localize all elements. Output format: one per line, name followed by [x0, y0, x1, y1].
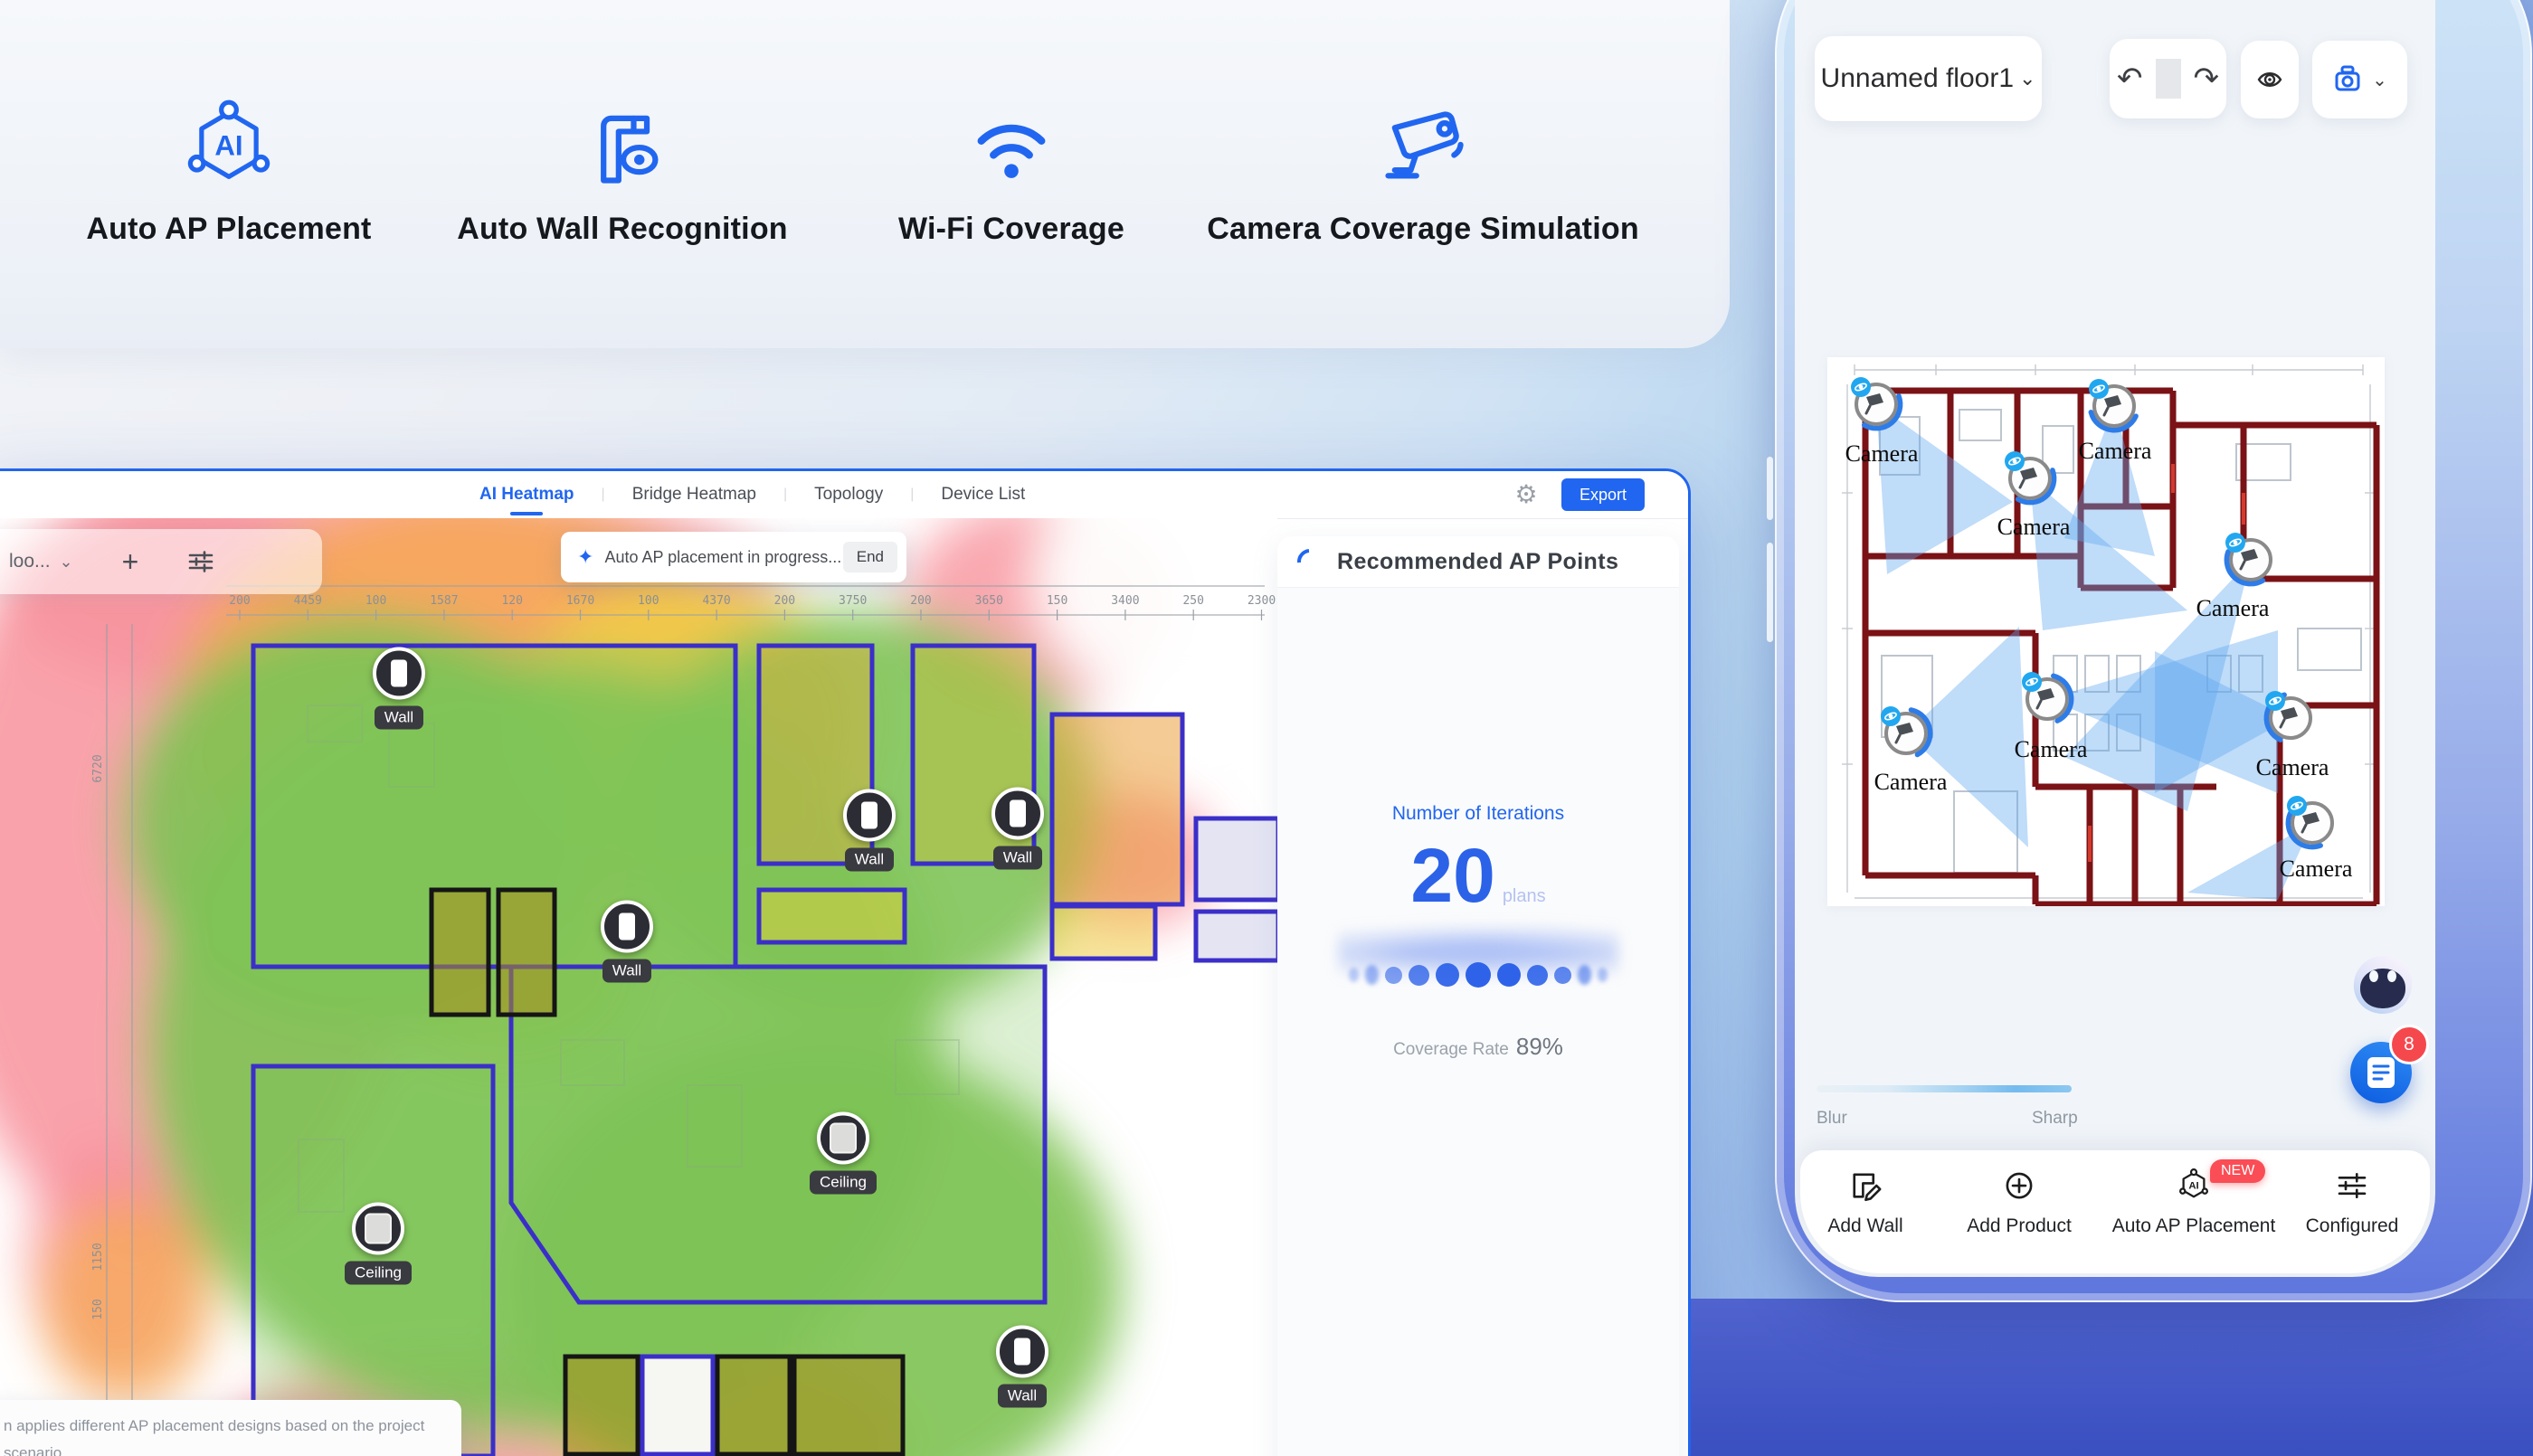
wall-tag: Wall	[375, 706, 423, 730]
svg-text:250: 250	[1182, 594, 1203, 608]
panel-title: Recommended AP Points	[1337, 549, 1618, 575]
wall-icon	[991, 788, 1044, 840]
slider-right-label: Sharp	[2032, 1109, 2078, 1129]
document-icon	[2366, 1055, 2396, 1090]
ceiling-tag: Ceiling	[810, 1171, 877, 1195]
coverage-value: 89%	[1516, 1033, 1563, 1060]
wall-marker[interactable]: Wall	[991, 788, 1044, 870]
ceiling-icon	[352, 1203, 404, 1255]
iteration-dot	[1365, 965, 1379, 986]
wall-marker[interactable]: Wall	[373, 648, 425, 730]
wall-icon	[373, 648, 425, 700]
svg-text:Camera: Camera	[1997, 514, 2071, 540]
iteration-dot	[1598, 968, 1608, 983]
wall-marker[interactable]: Wall	[843, 789, 896, 872]
panel-body: Number of Iterations 20plans Coverage Ra…	[1277, 588, 1679, 1456]
coverage-label: Coverage Rate	[1393, 1040, 1509, 1059]
sparkle-icon: ✦	[577, 545, 593, 569]
recommended-ap-panel: Recommended AP Points Number of Iteratio…	[1277, 536, 1679, 1456]
camera-floorplan[interactable]: CameraCameraCameraCameraCameraCameraCame…	[1827, 357, 2385, 906]
iteration-dot	[1436, 963, 1459, 987]
svg-text:150: 150	[1047, 594, 1067, 608]
svg-text:AI: AI	[214, 129, 242, 161]
wall-icon	[601, 901, 653, 953]
undo-redo-group: ↶ ↷	[2110, 39, 2226, 118]
iteration-dot	[1554, 967, 1571, 984]
chevron-down-icon: ⌄	[2019, 67, 2035, 90]
svg-text:Camera: Camera	[2280, 856, 2353, 882]
tab-device-list[interactable]: Device List	[941, 485, 1025, 505]
chevron-down-icon: ⌄	[2372, 69, 2387, 91]
floor-selector-cluster: loo... ⌄ +	[0, 529, 322, 594]
toast-text: Auto AP placement in progress...	[604, 548, 842, 567]
rotate-3d-badge	[2287, 796, 2307, 816]
loading-spinner-icon	[1292, 544, 1327, 579]
tab-bridge-heatmap[interactable]: Bridge Heatmap	[632, 485, 756, 505]
tab-separator: |	[910, 487, 914, 503]
toolbar-item-label: Auto AP Placement	[2112, 1215, 2276, 1237]
wall-marker[interactable]: Wall	[996, 1326, 1048, 1408]
phone-side-button	[1767, 457, 1773, 520]
tooltip-line1: n applies different AP placement designs…	[4, 1413, 443, 1456]
camera-icon	[2332, 65, 2365, 94]
feature-label: Auto Wall Recognition	[457, 212, 788, 247]
feature-label: Camera Coverage Simulation	[1207, 212, 1639, 247]
iteration-dot	[1349, 968, 1359, 983]
feature-strip: AIAuto AP Placement Auto Wall Recognitio…	[0, 0, 1730, 348]
window-toolbar: AI Heatmap|Bridge Heatmap|Topology|Devic…	[0, 471, 1688, 519]
redo-button[interactable]: ↷	[2181, 61, 2233, 97]
svg-text:4370: 4370	[702, 594, 730, 608]
iteration-dot	[1578, 965, 1591, 986]
divider	[2156, 59, 2181, 99]
ceiling-marker[interactable]: Ceiling	[345, 1203, 412, 1285]
iteration-dot	[1497, 963, 1521, 987]
rotate-3d-badge	[2265, 691, 2285, 711]
heatmap-svg: 2004459100158712016701004370200375020036…	[0, 518, 1277, 1456]
floorplan-svg: CameraCameraCameraCameraCameraCameraCame…	[1827, 357, 2385, 906]
svg-text:Camera: Camera	[2196, 595, 2270, 621]
wall-icon	[996, 1326, 1048, 1378]
rotate-3d-badge	[2005, 451, 2025, 471]
toolbar-item-label: Add Wall	[1827, 1215, 1902, 1237]
rotate-3d-badge	[2022, 672, 2042, 692]
export-button[interactable]: Export	[1561, 478, 1645, 511]
panel-header: Recommended AP Points	[1277, 536, 1679, 588]
ceiling-tag: Ceiling	[345, 1262, 412, 1285]
floor-name-label: Unnamed floor1	[1821, 63, 2014, 94]
svg-text:6720: 6720	[91, 754, 105, 782]
wall-tag: Wall	[993, 846, 1042, 870]
tab-separator: |	[602, 487, 605, 503]
toolbar-item-add-product[interactable]: Add Product	[1933, 1167, 2105, 1237]
zoom-in-button[interactable]: +	[122, 545, 139, 579]
rotate-3d-badge	[2089, 379, 2109, 399]
ai-mascot-icon	[2354, 956, 2412, 1014]
slider-left-label: Blur	[1817, 1109, 1847, 1129]
wall-tag: Wall	[845, 848, 894, 872]
svg-text:1670: 1670	[566, 594, 594, 608]
svg-text:100: 100	[638, 594, 659, 608]
ap-progress-toast: ✦ Auto AP placement in progress... End	[561, 532, 906, 582]
new-badge: NEW	[2210, 1159, 2265, 1183]
rotate-3d-badge	[2225, 533, 2245, 553]
rotate-3d-badge	[1851, 377, 1871, 397]
phone-side-button	[1767, 543, 1773, 642]
background-band	[1691, 1299, 2533, 1456]
wall-tag: Wall	[602, 960, 651, 983]
tab-ai-heatmap[interactable]: AI Heatmap	[479, 485, 574, 505]
settings-gear-icon[interactable]: ⚙	[1511, 479, 1542, 510]
tab-topology[interactable]: Topology	[814, 485, 883, 505]
svg-text:120: 120	[501, 594, 522, 608]
svg-text:Camera: Camera	[2256, 754, 2329, 780]
toolbar-item-configured[interactable]: Configured	[2266, 1167, 2435, 1237]
iteration-dot	[1527, 965, 1548, 986]
svg-text:3650: 3650	[975, 594, 1003, 608]
visibility-button[interactable]	[2241, 41, 2299, 118]
feature-cctv: Camera Coverage Simulation	[1170, 98, 1676, 247]
iterations-value-row: 20plans	[1277, 837, 1679, 913]
toolbar-item-label: Configured	[2306, 1215, 2399, 1237]
ceiling-icon	[817, 1112, 869, 1165]
toolbar-item-add-wall[interactable]: Add Wall	[1795, 1167, 1951, 1237]
stage: AIAuto AP Placement Auto Wall Recognitio…	[0, 0, 2533, 1456]
tab-bar: AI Heatmap|Bridge Heatmap|Topology|Devic…	[479, 471, 1025, 518]
notification-badge: 8	[2389, 1025, 2429, 1064]
blur-sharp-slider[interactable]	[1817, 1085, 2072, 1092]
floor-selector[interactable]: loo...	[9, 551, 51, 572]
scenario-tooltip: n applies different AP placement designs…	[0, 1400, 461, 1456]
layers-filter-icon[interactable]	[185, 546, 216, 577]
rotate-3d-badge	[1881, 706, 1901, 726]
undo-button[interactable]: ↶	[2104, 61, 2156, 97]
svg-text:4459: 4459	[294, 594, 322, 608]
phone-toolbar: Add Wall Add Product AIAuto AP Placement…	[1800, 1150, 2430, 1273]
eye-icon	[2255, 65, 2284, 94]
iterations-value: 20	[1410, 833, 1494, 918]
ceiling-marker[interactable]: Ceiling	[810, 1112, 877, 1195]
svg-text:Camera: Camera	[1874, 769, 1948, 795]
iterations-unit: plans	[1503, 886, 1546, 906]
end-button[interactable]: End	[843, 542, 897, 572]
iteration-dot	[1385, 967, 1402, 984]
toolbar-item-label: Add Product	[1967, 1215, 2072, 1237]
iterations-label: Number of Iterations	[1277, 803, 1679, 825]
wall-tag: Wall	[998, 1385, 1047, 1408]
svg-text:2300: 2300	[1248, 594, 1276, 608]
iteration-dot	[1409, 965, 1429, 986]
phone-screen: Unnamed floor1⌄ ↶ ↷ ⌄	[1795, 0, 2435, 1277]
svg-text:3400: 3400	[1111, 594, 1139, 608]
tab-separator: |	[783, 487, 787, 503]
toolbar-item-auto-ap-placement[interactable]: AIAuto AP PlacementNEW	[2108, 1167, 2280, 1237]
wall-marker[interactable]: Wall	[601, 901, 653, 983]
svg-text:AI: AI	[2188, 1181, 2198, 1192]
desktop-window: AI Heatmap|Bridge Heatmap|Topology|Devic…	[0, 468, 1691, 1456]
iteration-dots	[1277, 948, 1679, 1002]
svg-text:1150: 1150	[91, 1243, 105, 1271]
chevron-down-icon[interactable]: ⌄	[60, 553, 73, 572]
svg-text:3750: 3750	[839, 594, 867, 608]
svg-text:100: 100	[365, 594, 386, 608]
wall-icon	[843, 789, 896, 842]
svg-text:1587: 1587	[430, 594, 458, 608]
svg-text:200: 200	[774, 594, 795, 608]
coverage-rate: Coverage Rate89%	[1277, 1033, 1679, 1061]
svg-text:200: 200	[229, 594, 250, 608]
svg-text:Camera: Camera	[2015, 736, 2088, 762]
svg-text:200: 200	[910, 594, 931, 608]
svg-text:Camera: Camera	[2079, 438, 2152, 464]
iteration-dot	[1466, 962, 1491, 988]
feature-label: Wi-Fi Coverage	[898, 212, 1124, 247]
svg-text:150: 150	[91, 1299, 105, 1319]
svg-text:Camera: Camera	[1845, 440, 1919, 467]
camera-mode-button[interactable]: ⌄	[2312, 41, 2407, 118]
heatmap-canvas[interactable]: 2004459100158712016701004370200375020036…	[0, 518, 1277, 1456]
floor-name-dropdown[interactable]: Unnamed floor1⌄	[1815, 36, 2042, 121]
feature-label: Auto AP Placement	[86, 212, 371, 247]
